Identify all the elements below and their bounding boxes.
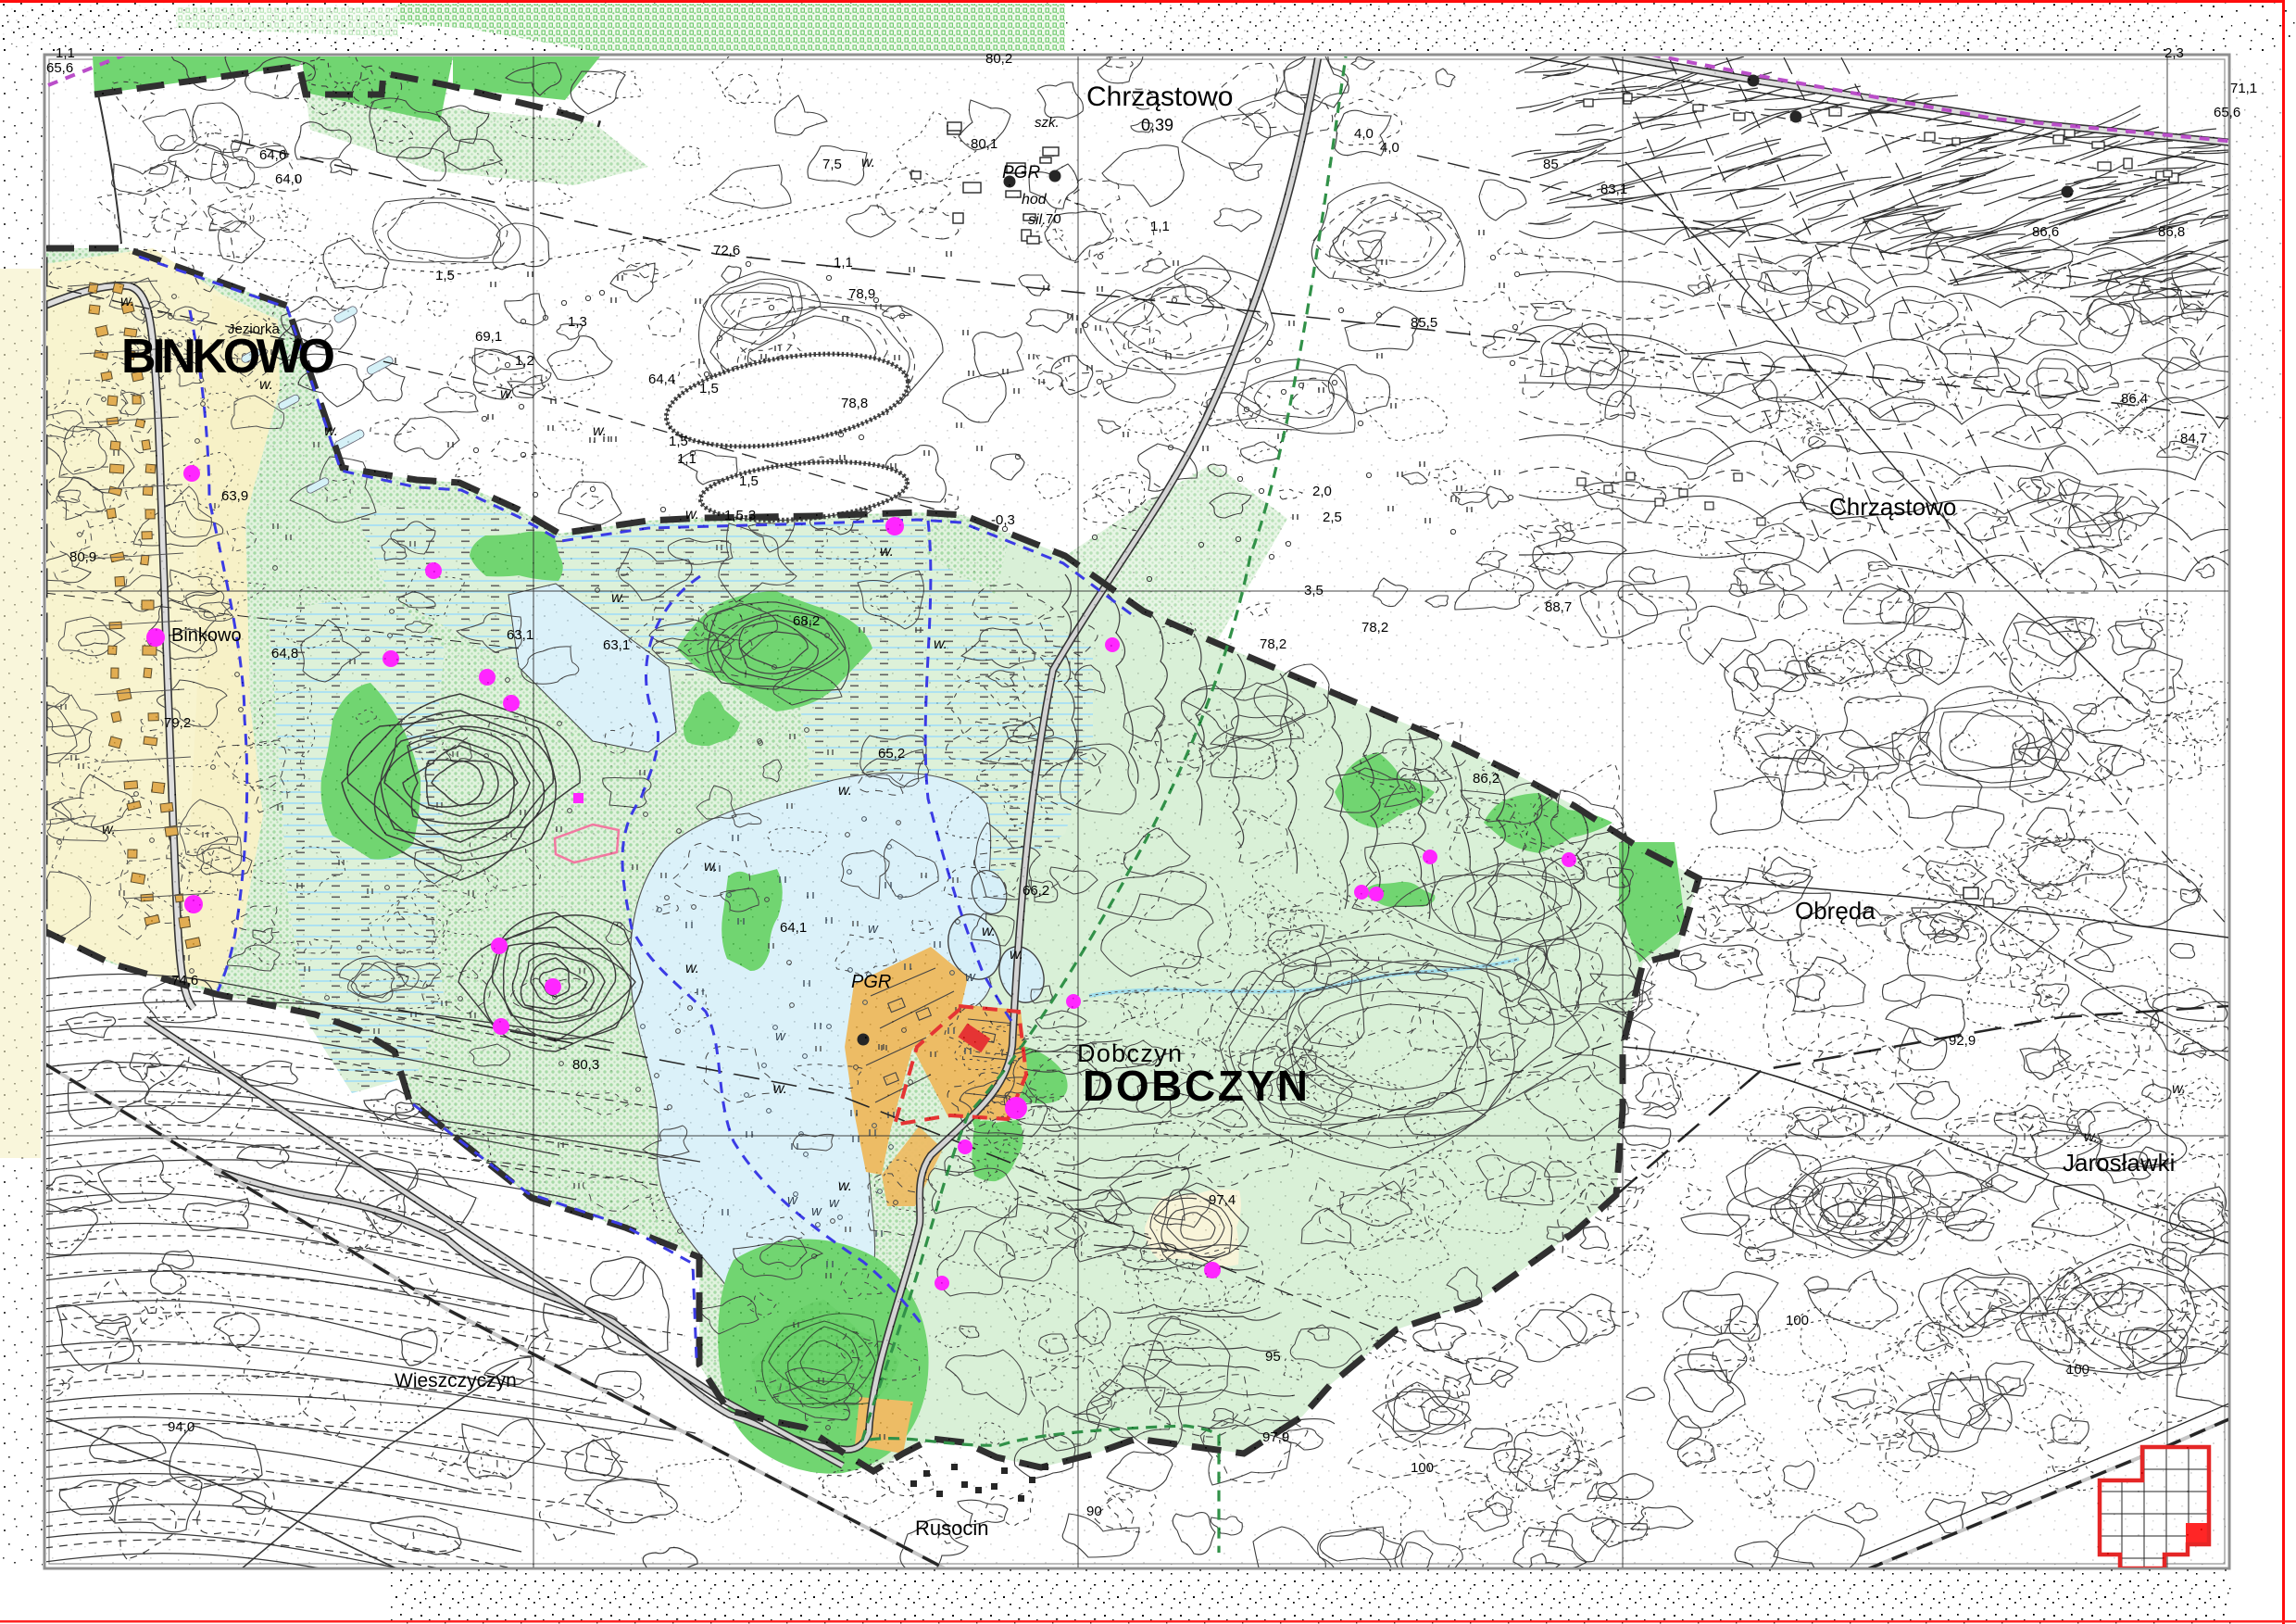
svg-text:Chrząstowo: Chrząstowo [1086,82,1233,112]
svg-text:64,4: 64,4 [648,371,675,387]
svg-text:95: 95 [1265,1349,1281,1365]
svg-text:79,2: 79,2 [164,715,191,731]
svg-text:1,3: 1,3 [568,314,587,330]
svg-text:70: 70 [1046,211,1061,227]
svg-text:84,7: 84,7 [2180,431,2207,447]
svg-text:88,7: 88,7 [1545,599,1572,615]
svg-text:1,1: 1,1 [56,45,75,61]
svg-text:63,1: 63,1 [507,627,533,643]
svg-text:w.: w. [2084,1129,2098,1145]
svg-text:100: 100 [1411,1460,1434,1476]
svg-text:85,5: 85,5 [1411,315,1437,331]
svg-text:2,3: 2,3 [2164,45,2184,61]
svg-text:w.: w. [500,386,514,402]
svg-text:w.: w. [120,294,134,309]
svg-text:94,0: 94,0 [168,1419,194,1435]
svg-text:1,5: 1,5 [669,434,688,449]
svg-text:w.: w. [685,507,699,522]
svg-text:78,8: 78,8 [841,396,868,411]
svg-text:63,9: 63,9 [221,488,248,504]
svg-text:2,5: 2,5 [1323,510,1342,525]
svg-text:1,1: 1,1 [1150,219,1170,234]
svg-text:1,5-3: 1,5-3 [724,508,756,523]
svg-text:71,1: 71,1 [2230,81,2257,96]
svg-text:w.: w. [102,822,116,837]
svg-text:65,6: 65,6 [2214,105,2240,120]
svg-text:w.: w. [880,544,894,560]
svg-text:68,2: 68,2 [793,613,820,629]
svg-text:66,2: 66,2 [1023,883,1049,899]
svg-text:64,1: 64,1 [780,920,807,936]
svg-text:w.: w. [2172,1081,2186,1097]
svg-text:90: 90 [1086,1504,1102,1519]
svg-text:Jarosławki: Jarosławki [2063,1149,2175,1177]
svg-text:w.: w. [685,961,699,976]
svg-text:78,2: 78,2 [1260,636,1286,652]
svg-text:Obręda: Obręda [1795,897,1876,925]
svg-text:w.: w. [838,783,852,799]
svg-text:w.: w. [324,423,338,439]
svg-text:BINKOWO: BINKOWO [121,330,335,384]
svg-text:1,5: 1,5 [699,381,719,397]
svg-text:w.: w. [934,636,947,652]
svg-text:w.: w. [838,1178,852,1194]
svg-text:Jeziorka: Jeziorka [228,321,281,337]
svg-text:80,9: 80,9 [69,549,96,565]
svg-text:80,2: 80,2 [985,51,1012,67]
svg-text:85: 85 [1543,157,1559,172]
svg-text:1,1: 1,1 [677,451,696,467]
svg-text:86,2: 86,2 [1473,771,1499,787]
svg-text:100: 100 [1786,1313,1809,1328]
svg-text:64,6: 64,6 [259,147,286,163]
svg-text:92,9: 92,9 [1949,1033,1976,1049]
svg-text:3,5: 3,5 [1304,583,1324,598]
svg-text:69,1: 69,1 [475,329,502,345]
svg-text:Binkowo: Binkowo [171,625,242,646]
svg-text:86,4: 86,4 [2121,391,2148,407]
svg-text:2,0: 2,0 [1312,484,1332,499]
svg-text:74,6: 74,6 [171,973,198,988]
svg-text:hod: hod [1022,192,1048,208]
svg-text:97,4: 97,4 [1209,1192,1236,1208]
svg-text:86,8: 86,8 [2158,224,2185,240]
svg-text:Rusocin: Rusocin [915,1517,988,1540]
svg-text:Wieszczyczyn: Wieszczyczyn [395,1370,517,1391]
svg-text:sil.: sil. [1028,212,1047,228]
svg-text:64,0: 64,0 [275,171,302,187]
svg-text:w.: w. [611,590,625,606]
svg-text:97,9: 97,9 [1262,1429,1289,1445]
svg-text:szk.: szk. [1035,115,1060,131]
svg-text:Chrząstowo: Chrząstowo [1829,493,1956,521]
svg-text:1,2: 1,2 [515,353,534,369]
svg-text:86,6: 86,6 [2032,224,2059,240]
svg-text:w.: w. [773,1081,787,1097]
svg-text:w.: w. [1010,947,1023,963]
svg-text:72,6: 72,6 [713,243,740,258]
svg-text:0,39: 0,39 [1141,116,1173,134]
svg-text:PGR: PGR [851,972,891,992]
svg-text:64,8: 64,8 [271,646,298,661]
svg-text:1,5: 1,5 [435,268,455,283]
svg-text:DOBCZYN: DOBCZYN [1083,1062,1308,1110]
svg-text:Dobczyn: Dobczyn [1077,1039,1182,1067]
svg-text:78,9: 78,9 [848,286,875,302]
svg-text:83,1: 83,1 [1600,182,1627,197]
svg-text:w.: w. [593,423,607,439]
svg-text:w.: w. [704,859,718,875]
svg-text:65,6: 65,6 [46,60,73,76]
svg-text:w.: w. [982,924,996,939]
svg-text:65,2: 65,2 [878,746,905,762]
svg-text:80,1: 80,1 [971,136,997,152]
svg-text:1,5: 1,5 [739,473,759,489]
svg-text:PGR: PGR [1002,163,1040,183]
svg-text:100: 100 [2066,1362,2089,1378]
svg-text:4,0: 4,0 [1380,140,1399,156]
svg-text:w.: w. [259,377,273,393]
svg-text:1,1: 1,1 [834,255,853,271]
svg-text:63,1: 63,1 [603,637,630,653]
svg-text:80,3: 80,3 [572,1057,599,1073]
svg-text:78,2: 78,2 [1361,620,1388,636]
svg-text:7,5: 7,5 [822,157,842,172]
svg-text:-0,3: -0,3 [991,512,1015,528]
svg-text:4,0: 4,0 [1354,126,1374,142]
svg-text:w.: w. [861,155,875,170]
